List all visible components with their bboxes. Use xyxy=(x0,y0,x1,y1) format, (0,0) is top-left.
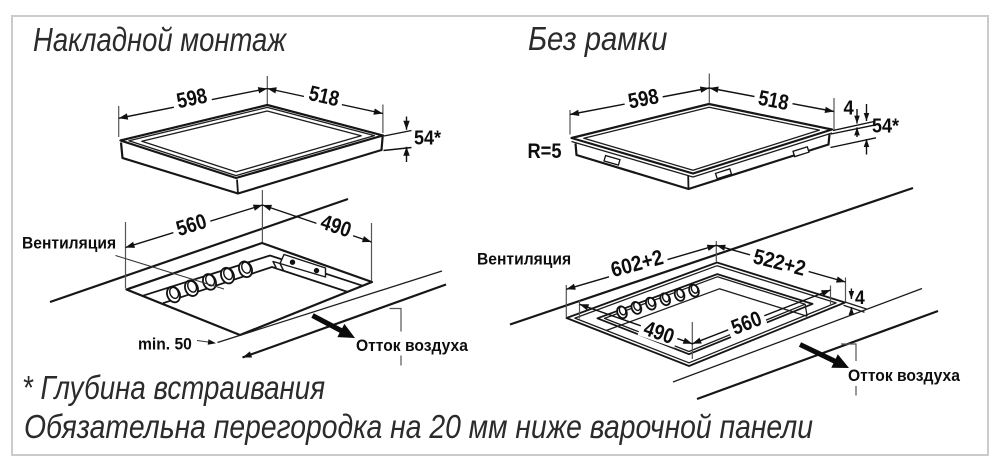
svg-text:4: 4 xyxy=(855,286,865,308)
svg-text:R=5: R=5 xyxy=(528,139,562,163)
svg-text:Отток воздуха: Отток воздуха xyxy=(356,336,469,355)
svg-text:602+2: 602+2 xyxy=(609,246,666,282)
svg-text:4: 4 xyxy=(844,97,854,120)
svg-text:Отток воздуха: Отток воздуха xyxy=(848,366,961,385)
svg-text:518: 518 xyxy=(306,82,341,112)
svg-text:598: 598 xyxy=(626,85,660,114)
svg-text:54*: 54* xyxy=(414,128,442,150)
svg-text:54*: 54* xyxy=(872,116,900,138)
svg-text:598: 598 xyxy=(175,84,210,114)
svg-text:min. 50: min. 50 xyxy=(138,335,192,354)
svg-text:518: 518 xyxy=(756,86,790,115)
svg-text:Вентиляция: Вентиляция xyxy=(477,250,571,269)
svg-text:Вентиляция: Вентиляция xyxy=(22,234,116,253)
